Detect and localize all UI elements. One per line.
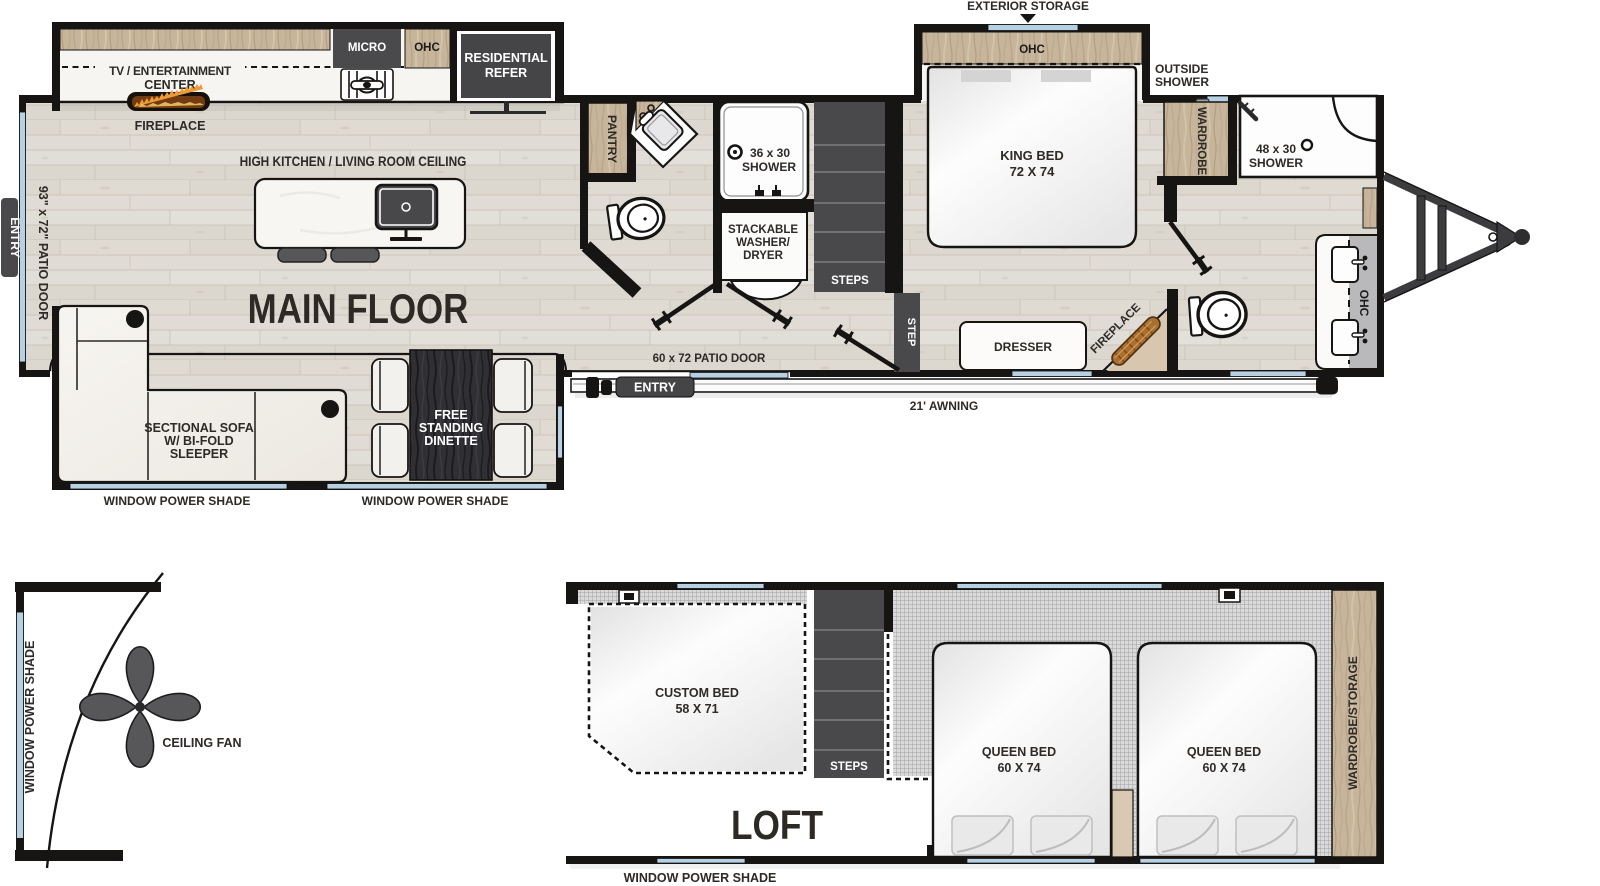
svg-text:STEPS: STEPS xyxy=(831,275,869,287)
svg-text:STEPS: STEPS xyxy=(830,761,868,773)
svg-text:TV / ENTERTAINMENT: TV / ENTERTAINMENT xyxy=(109,64,232,78)
svg-text:72 X 74: 72 X 74 xyxy=(1010,164,1056,179)
svg-text:OHC: OHC xyxy=(414,42,440,54)
svg-text:DRESSER: DRESSER xyxy=(994,340,1052,354)
svg-text:ENTRY: ENTRY xyxy=(8,217,22,257)
svg-text:HIGH KITCHEN / LIVING ROOM CEI: HIGH KITCHEN / LIVING ROOM CEILING xyxy=(240,153,467,169)
svg-text:MICRO: MICRO xyxy=(348,42,386,54)
svg-text:DRYER: DRYER xyxy=(743,250,784,262)
svg-text:SLEEPER: SLEEPER xyxy=(170,447,228,461)
svg-text:WINDOW POWER SHADE: WINDOW POWER SHADE xyxy=(23,641,37,794)
svg-text:MAIN FLOOR: MAIN FLOOR xyxy=(248,286,469,333)
svg-text:OUTSIDE: OUTSIDE xyxy=(1155,62,1208,76)
svg-text:CUSTOM BED: CUSTOM BED xyxy=(655,686,739,700)
svg-text:DINETTE: DINETTE xyxy=(424,434,477,448)
svg-text:RESIDENTIAL: RESIDENTIAL xyxy=(464,51,548,65)
svg-text:STANDING: STANDING xyxy=(419,421,483,435)
svg-text:93" x 72" PATIO DOOR: 93" x 72" PATIO DOOR xyxy=(36,186,50,320)
svg-text:OHC: OHC xyxy=(1357,290,1371,317)
svg-text:48 x 30: 48 x 30 xyxy=(1256,142,1296,156)
svg-text:KING BED: KING BED xyxy=(1000,148,1064,163)
svg-text:WARDROBE: WARDROBE xyxy=(1195,107,1207,176)
svg-text:SHOWER: SHOWER xyxy=(1155,75,1209,89)
svg-text:60 X 74: 60 X 74 xyxy=(1202,761,1245,775)
svg-text:SHOWER: SHOWER xyxy=(1249,156,1303,170)
svg-text:60 x 72 PATIO DOOR: 60 x 72 PATIO DOOR xyxy=(653,353,766,365)
svg-text:WINDOW POWER SHADE: WINDOW POWER SHADE xyxy=(104,494,251,508)
svg-text:58 X 71: 58 X 71 xyxy=(675,702,718,716)
svg-text:OHC: OHC xyxy=(1019,44,1045,56)
svg-text:STEP: STEP xyxy=(905,318,917,347)
svg-text:SHOWER: SHOWER xyxy=(742,160,796,174)
svg-text:WINDOW POWER SHADE: WINDOW POWER SHADE xyxy=(624,871,777,885)
svg-text:FIREPLACE: FIREPLACE xyxy=(135,119,206,133)
svg-text:CEILING FAN: CEILING FAN xyxy=(162,736,241,750)
svg-text:21' AWNING: 21' AWNING xyxy=(910,399,978,413)
svg-text:PANTRY: PANTRY xyxy=(605,115,619,163)
svg-text:REFER: REFER xyxy=(485,66,527,80)
svg-text:36 x 30: 36 x 30 xyxy=(750,146,790,160)
svg-text:WASHER/: WASHER/ xyxy=(736,237,790,249)
svg-text:SECTIONAL SOFA: SECTIONAL SOFA xyxy=(144,421,254,435)
svg-text:WINDOW POWER SHADE: WINDOW POWER SHADE xyxy=(362,494,509,508)
svg-text:W/ BI-FOLD: W/ BI-FOLD xyxy=(164,434,233,448)
svg-text:ENTRY: ENTRY xyxy=(634,381,677,395)
svg-text:STACKABLE: STACKABLE xyxy=(728,224,798,236)
svg-text:QUEEN BED: QUEEN BED xyxy=(982,745,1056,759)
svg-text:60 X 74: 60 X 74 xyxy=(997,761,1040,775)
svg-text:FREE: FREE xyxy=(434,408,467,422)
svg-text:QUEEN BED: QUEEN BED xyxy=(1187,745,1261,759)
svg-text:EXTERIOR STORAGE: EXTERIOR STORAGE xyxy=(967,0,1089,13)
svg-text:WARDROBE/STORAGE: WARDROBE/STORAGE xyxy=(1346,656,1360,790)
svg-text:LOFT: LOFT xyxy=(731,803,823,849)
